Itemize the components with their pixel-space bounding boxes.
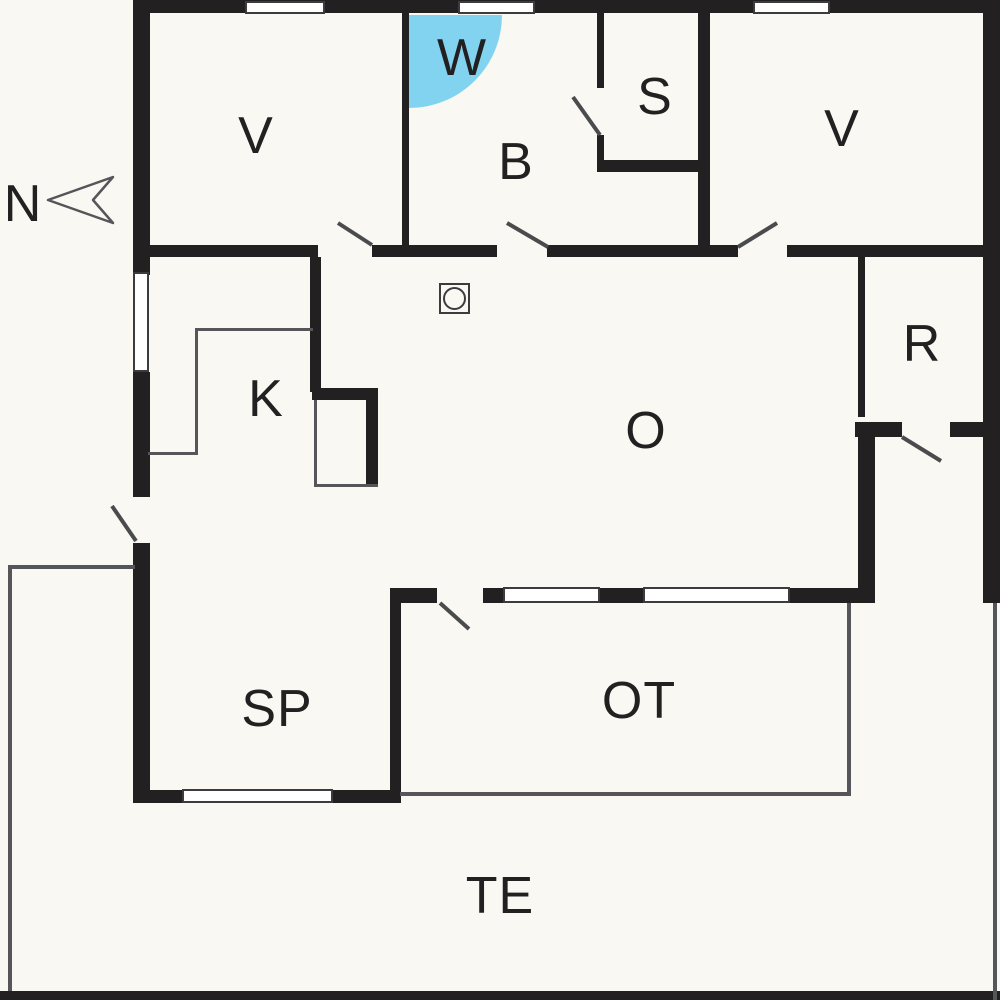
room-label-v2: V — [824, 99, 860, 159]
floor-plan: N V W B S V K O R SP OT TE — [0, 0, 1000, 1000]
room-label-k: K — [248, 369, 284, 429]
room-label-w: W — [437, 28, 487, 88]
room-label-b: B — [498, 132, 534, 192]
room-label-ot: OT — [602, 671, 676, 731]
room-label-s: S — [637, 67, 673, 127]
room-label-o: O — [625, 401, 666, 461]
room-label-sp: SP — [241, 679, 312, 739]
door-swing-icon-entrance — [112, 506, 136, 541]
room-label-v1: V — [238, 106, 274, 166]
compass-label-n: N — [4, 174, 43, 234]
door-swing-icon-s — [573, 97, 600, 135]
door-swing-icon-v1 — [338, 223, 372, 245]
door-swing-icon-v2 — [738, 223, 777, 247]
room-label-r: R — [903, 314, 942, 374]
door-swing-icon-b — [507, 223, 548, 247]
door-swing-icon-r — [902, 437, 941, 461]
north-arrow-icon — [48, 177, 113, 223]
door-swing-icon-ot — [440, 603, 469, 629]
room-label-te: TE — [466, 866, 534, 926]
